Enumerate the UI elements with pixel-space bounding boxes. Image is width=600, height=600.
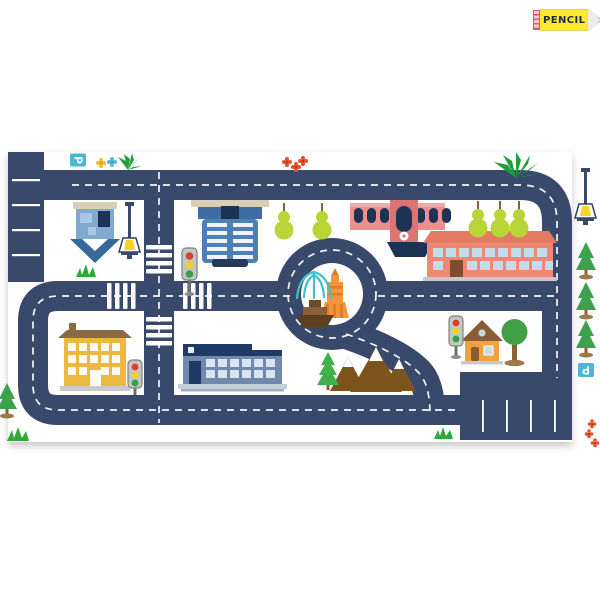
apartment-building-blue xyxy=(191,200,269,267)
flower xyxy=(591,438,600,447)
pencil-logo: PENCIL xyxy=(533,8,600,32)
road-network xyxy=(8,152,572,440)
pine-tree xyxy=(576,320,596,358)
parking-sign-letter: P xyxy=(72,156,85,164)
apartment-building-yellow xyxy=(58,323,132,391)
pine-tree xyxy=(576,282,596,320)
pine-tree xyxy=(576,242,596,280)
parking-lot-top-left xyxy=(8,152,44,282)
pencil-logo-label: PENCIL xyxy=(540,9,588,31)
pencil-tip xyxy=(588,9,600,31)
playmat-scene: P P xyxy=(0,0,600,600)
office-building-blue xyxy=(178,344,287,392)
school-building-coral xyxy=(423,231,557,281)
pencil-eraser xyxy=(533,10,540,30)
flower xyxy=(588,419,597,428)
street-lamp xyxy=(575,168,596,225)
flower xyxy=(585,429,594,438)
parking-sign: P xyxy=(70,153,87,167)
parking-lot-bottom-right xyxy=(460,372,572,440)
parking-sign-letter: P xyxy=(582,364,590,377)
parking-sign: P xyxy=(578,363,595,378)
